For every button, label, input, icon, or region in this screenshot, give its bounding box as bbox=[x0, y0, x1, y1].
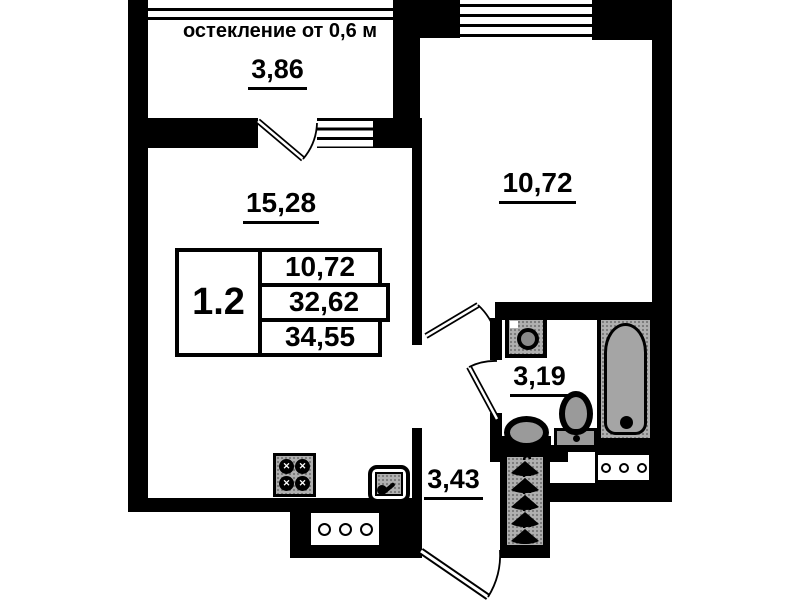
door-swing-icon entrance-door bbox=[421, 550, 500, 597]
coat-hanger-icon bbox=[511, 524, 539, 544]
door-swing-icon bathroom-door bbox=[469, 361, 497, 419]
door-swing-icon balcony-door bbox=[258, 121, 317, 159]
doors-and-symbols-layer bbox=[0, 0, 799, 600]
door-swing-icon bedroom-door bbox=[426, 305, 496, 336]
floor-plan: остекление от 0,6 м 3,86 15,28 10,72 3,1… bbox=[0, 0, 799, 600]
